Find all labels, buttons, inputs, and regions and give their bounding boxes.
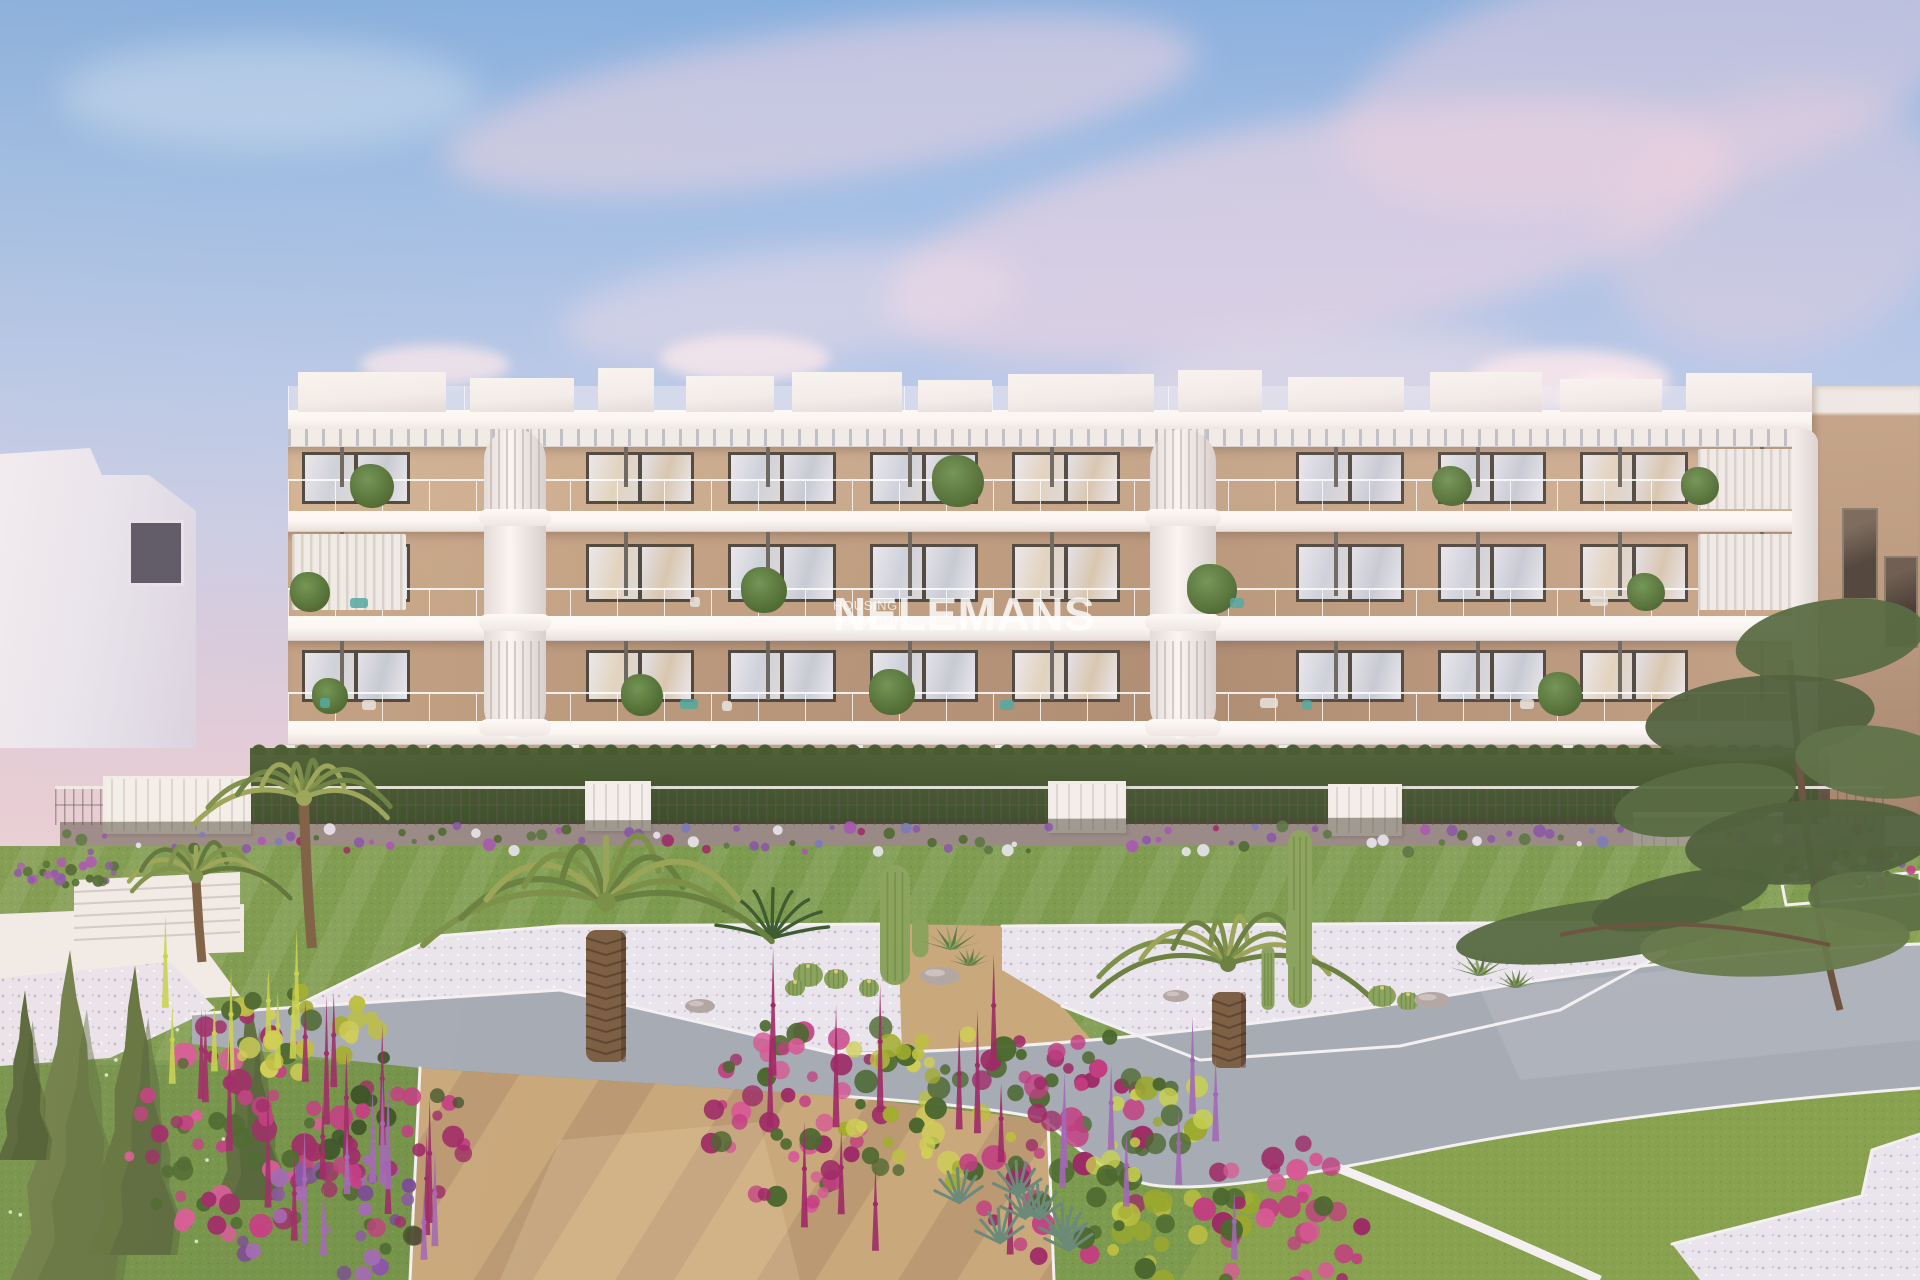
flower <box>662 834 674 846</box>
petal <box>207 1216 226 1235</box>
palm-frond <box>606 893 772 941</box>
flower <box>1213 825 1219 831</box>
flower <box>1557 834 1563 840</box>
architectural-render: NELEMANS HOUSING SOLUTIONS <box>0 0 1920 1280</box>
petal <box>846 1119 865 1138</box>
flower-spike <box>386 1126 391 1131</box>
petal <box>430 1088 445 1103</box>
flower <box>857 828 865 836</box>
petal <box>304 1118 315 1129</box>
flower <box>1239 841 1250 852</box>
flower <box>87 849 94 856</box>
petal <box>354 1266 371 1280</box>
petal <box>192 1138 204 1150</box>
petal <box>442 1126 464 1148</box>
flower-spike <box>770 948 777 1076</box>
petal <box>855 1099 866 1110</box>
petal <box>281 1150 299 1168</box>
flower <box>802 849 808 855</box>
flower <box>1487 835 1495 843</box>
palm-frond <box>196 868 290 898</box>
flower <box>75 834 87 846</box>
rock-highlight <box>925 969 945 976</box>
flower <box>830 825 835 830</box>
petal <box>1030 1247 1048 1265</box>
petal <box>1016 1049 1027 1060</box>
flower <box>815 840 823 848</box>
petal <box>27 876 34 883</box>
pine-trees <box>1452 587 1920 1010</box>
petal <box>1045 1073 1059 1087</box>
rock <box>685 999 715 1013</box>
petal <box>883 1106 899 1122</box>
flower <box>494 835 502 843</box>
flower <box>102 833 107 838</box>
petal <box>14 869 22 877</box>
flower-spike <box>163 954 168 959</box>
palm-crown <box>596 892 615 911</box>
petal <box>51 870 58 877</box>
flower <box>761 843 770 852</box>
petal <box>358 1185 374 1201</box>
petal <box>171 1116 183 1128</box>
flower <box>1164 827 1172 835</box>
petal <box>453 1097 464 1108</box>
petal <box>172 1160 193 1181</box>
barrel-top <box>1406 992 1410 996</box>
barrel-top <box>1380 986 1384 990</box>
flower <box>1002 844 1014 856</box>
flower <box>1126 840 1138 852</box>
flower <box>688 836 699 847</box>
petal <box>244 992 262 1010</box>
petal <box>1212 1188 1230 1206</box>
petal <box>1135 1258 1156 1279</box>
petal <box>57 858 67 868</box>
petal <box>412 1143 425 1156</box>
petal <box>771 1128 784 1141</box>
rock <box>1414 992 1450 1008</box>
flower-spike <box>380 1076 385 1081</box>
petal <box>355 1230 366 1241</box>
petal <box>1034 1148 1045 1159</box>
petal <box>175 1191 186 1202</box>
petal <box>1145 1133 1166 1154</box>
flower-spike <box>212 1031 217 1036</box>
flower-spike <box>343 1052 350 1154</box>
lawn-palms <box>129 760 390 962</box>
petal <box>403 1226 423 1246</box>
flower-spike <box>427 1151 432 1156</box>
petal <box>704 1100 724 1120</box>
flower-spike <box>294 971 299 976</box>
flower <box>275 838 283 846</box>
flower-spike <box>162 914 169 1008</box>
petal <box>395 1216 407 1228</box>
petal <box>781 1088 796 1103</box>
daisy <box>96 1049 100 1053</box>
flower-spike <box>1232 1219 1237 1224</box>
petal <box>777 1042 790 1055</box>
daisy <box>114 1058 118 1062</box>
petal <box>912 1048 925 1061</box>
petal <box>403 1087 422 1106</box>
petal <box>367 1218 386 1237</box>
petal <box>1123 1099 1145 1121</box>
flower-spike <box>199 1047 204 1052</box>
petal <box>1256 1208 1275 1227</box>
rock <box>1163 990 1189 1002</box>
flower <box>1323 830 1332 839</box>
flower-spike <box>991 1003 996 1008</box>
petal <box>249 1214 273 1238</box>
flower-spike <box>170 1037 175 1042</box>
petal <box>1286 1159 1308 1181</box>
flower-spike <box>999 1116 1004 1121</box>
petal <box>924 1057 935 1068</box>
flower <box>453 822 461 830</box>
flower <box>578 837 585 844</box>
flower-spike <box>990 954 997 1070</box>
flower-spike <box>1189 1017 1196 1114</box>
petal <box>1048 1043 1066 1061</box>
flower <box>884 828 895 839</box>
petal <box>329 1105 353 1129</box>
petal <box>1028 1104 1048 1124</box>
petal <box>1102 1030 1117 1045</box>
petal <box>1220 1218 1243 1241</box>
petal <box>1154 1236 1170 1252</box>
flower-spike <box>839 1165 844 1170</box>
petal <box>273 1209 287 1223</box>
garden-plants <box>0 0 1920 1280</box>
petal <box>402 1178 416 1192</box>
cactus-arm <box>912 919 929 957</box>
flower-spike <box>331 1032 336 1037</box>
petal <box>239 1037 261 1059</box>
flower-spike <box>324 1051 329 1056</box>
flower-spike <box>320 1134 325 1139</box>
petal <box>811 1171 822 1182</box>
petal <box>788 1038 805 1055</box>
flower <box>789 840 795 846</box>
petal <box>355 1103 370 1118</box>
flower <box>369 840 374 845</box>
flower-spike <box>265 1138 270 1143</box>
petal <box>1034 1077 1047 1090</box>
barrel-top <box>806 964 810 968</box>
petal <box>1336 1273 1348 1280</box>
petal <box>1107 1244 1119 1256</box>
petal <box>1278 1195 1301 1218</box>
petal <box>806 1195 820 1209</box>
petal <box>1322 1157 1341 1176</box>
center-gravel-plants <box>423 836 991 1062</box>
petal <box>151 1198 163 1210</box>
flower-spike <box>1060 1139 1065 1144</box>
flower <box>749 841 759 851</box>
flower <box>681 823 691 833</box>
flower-spike <box>872 1166 879 1251</box>
petal <box>711 1131 732 1152</box>
flower <box>527 831 537 841</box>
flower-spike <box>1212 1056 1219 1141</box>
flower-spike <box>432 1191 437 1196</box>
flower <box>1402 846 1414 858</box>
flower <box>984 845 993 854</box>
petal <box>268 1090 280 1102</box>
petal <box>960 1026 976 1042</box>
petal <box>134 1106 149 1121</box>
flower <box>1577 841 1582 846</box>
daisy <box>9 1210 13 1214</box>
flower <box>1377 835 1388 846</box>
flower <box>438 827 447 836</box>
petal <box>85 856 97 868</box>
petal <box>208 1112 226 1130</box>
flower <box>471 828 481 838</box>
petal <box>245 1152 264 1171</box>
petal <box>1153 1078 1166 1091</box>
petal <box>915 1034 930 1049</box>
petal <box>1096 1165 1117 1186</box>
petal <box>1014 1238 1028 1252</box>
flower <box>927 838 936 847</box>
flower-spike <box>770 1003 775 1008</box>
flower <box>1545 829 1555 839</box>
petal <box>111 870 117 876</box>
petal <box>1193 1198 1216 1221</box>
petal <box>925 1097 947 1119</box>
petal <box>271 1187 285 1201</box>
petal <box>258 1111 274 1127</box>
flower-spike <box>975 1063 980 1068</box>
flower-spike <box>292 1191 297 1196</box>
flower-spike <box>1176 1141 1181 1146</box>
petal <box>1906 865 1915 874</box>
flower <box>62 829 71 838</box>
flower-spike <box>303 1034 308 1039</box>
flower-spike <box>265 967 272 1042</box>
petal <box>780 1138 792 1150</box>
flower-spike <box>344 1095 349 1100</box>
petal <box>817 1187 828 1198</box>
petal <box>1193 1109 1213 1129</box>
petal <box>758 1188 771 1201</box>
flower <box>724 843 730 849</box>
flower <box>483 838 496 851</box>
flower <box>1044 823 1053 832</box>
petal <box>105 862 113 870</box>
flower-spike <box>330 992 337 1087</box>
petal <box>830 1053 852 1075</box>
flower <box>412 839 417 844</box>
petal <box>788 1151 799 1162</box>
flower <box>702 845 711 854</box>
flower-spike <box>275 1023 280 1028</box>
barrel-rib <box>863 980 864 996</box>
flower <box>1447 825 1458 836</box>
petal <box>940 1064 950 1074</box>
petal <box>98 877 107 886</box>
petal <box>43 871 51 879</box>
flower <box>959 835 968 844</box>
petal <box>872 1158 890 1176</box>
flower <box>901 823 912 834</box>
left-flower-belt <box>124 914 472 1280</box>
petal <box>1295 1136 1311 1152</box>
flower <box>653 832 660 839</box>
petal <box>306 1101 321 1116</box>
barrel-rib <box>875 980 876 996</box>
petal <box>799 1095 811 1107</box>
flower <box>257 837 265 845</box>
petal <box>380 1243 392 1255</box>
flower <box>1519 833 1531 845</box>
petal <box>1159 1088 1178 1107</box>
flower <box>1533 825 1546 838</box>
flower-spike <box>1109 1100 1114 1105</box>
petal <box>339 1021 359 1041</box>
barrel-rib <box>789 981 790 995</box>
petal <box>43 861 51 869</box>
flower <box>733 825 740 832</box>
palm-trunk <box>304 800 312 948</box>
palm-crown <box>296 790 312 806</box>
petal <box>799 1128 821 1150</box>
petal <box>72 879 80 887</box>
flower <box>398 829 405 836</box>
petal <box>1267 1173 1286 1192</box>
petal <box>65 864 77 876</box>
petal <box>1314 1196 1334 1216</box>
flower <box>1457 830 1468 841</box>
flower-spike <box>802 1166 807 1171</box>
flower <box>343 847 350 854</box>
petal <box>892 1149 907 1164</box>
petal <box>161 1165 174 1178</box>
flower <box>1267 833 1277 843</box>
petal <box>972 1070 992 1090</box>
flower <box>1156 837 1162 843</box>
petal <box>401 1193 414 1206</box>
daisy <box>195 1240 199 1244</box>
petal <box>378 1051 390 1063</box>
flower-spike <box>873 1201 878 1206</box>
petal <box>1353 1218 1370 1235</box>
petal <box>337 1266 352 1280</box>
flower-spike <box>370 1128 375 1133</box>
flower-spike <box>321 1215 326 1220</box>
petal <box>807 1071 818 1082</box>
flower <box>975 837 986 848</box>
palm-crown <box>1220 956 1236 972</box>
flower-spike <box>169 1004 176 1084</box>
flower <box>1367 838 1377 848</box>
rock-highlight <box>1166 992 1179 997</box>
petal <box>455 1145 473 1163</box>
flower <box>1252 824 1259 831</box>
flower-spike <box>228 1012 233 1017</box>
petal <box>1299 1221 1320 1242</box>
flower-spike <box>421 1220 426 1225</box>
petal <box>1156 1214 1175 1233</box>
petal <box>176 1208 195 1227</box>
flower <box>1506 831 1512 837</box>
daisy <box>175 1028 179 1032</box>
petal <box>1144 1189 1168 1213</box>
flower <box>1589 828 1595 834</box>
daisy <box>81 1011 85 1015</box>
petal <box>843 1146 859 1162</box>
flower <box>314 835 320 841</box>
flower <box>386 842 394 850</box>
petal <box>742 1085 763 1106</box>
flower-spike <box>302 1176 307 1181</box>
flower <box>1420 825 1430 835</box>
petal <box>1063 1063 1074 1074</box>
flower <box>428 834 434 840</box>
palm-trunk <box>196 878 202 962</box>
petal <box>151 1125 169 1143</box>
flower-spike <box>211 1002 218 1071</box>
flower <box>1011 842 1017 848</box>
flower-spike <box>1190 1058 1195 1063</box>
palm-frond <box>423 893 606 946</box>
trunk-shade <box>621 930 626 1062</box>
petal <box>351 1120 367 1136</box>
flower <box>536 829 547 840</box>
petal <box>919 1137 935 1153</box>
flower <box>1142 836 1151 845</box>
petal <box>925 1068 941 1084</box>
daisy <box>222 1137 226 1141</box>
flower <box>844 821 857 834</box>
flower <box>1439 839 1446 846</box>
petal <box>1261 1147 1284 1170</box>
petal <box>301 1010 322 1031</box>
flower <box>1597 836 1609 848</box>
daisy <box>105 1073 109 1077</box>
petal <box>1082 1051 1095 1064</box>
petal <box>237 1236 249 1248</box>
petal <box>760 1020 772 1032</box>
petal <box>1071 1035 1086 1050</box>
petal <box>821 1160 841 1180</box>
flower <box>286 832 296 842</box>
petal <box>432 1111 442 1121</box>
petal <box>1074 1078 1088 1092</box>
petal <box>846 1041 862 1057</box>
flower-spike <box>998 1083 1005 1162</box>
petal <box>1334 1244 1353 1263</box>
petal <box>1223 1163 1239 1179</box>
flower <box>136 842 142 848</box>
barrel-top <box>834 970 838 974</box>
petal <box>1113 1220 1124 1231</box>
flower-spike <box>227 1086 232 1091</box>
barrel-rib <box>801 981 802 995</box>
petal <box>178 1058 189 1069</box>
rock-highlight <box>689 1001 704 1007</box>
flower <box>1312 826 1319 833</box>
flower <box>944 844 953 853</box>
flower <box>1182 847 1191 856</box>
flower-spike <box>833 1057 838 1062</box>
petal <box>723 1061 735 1073</box>
petal <box>1309 1153 1322 1166</box>
petal <box>1318 1262 1334 1278</box>
